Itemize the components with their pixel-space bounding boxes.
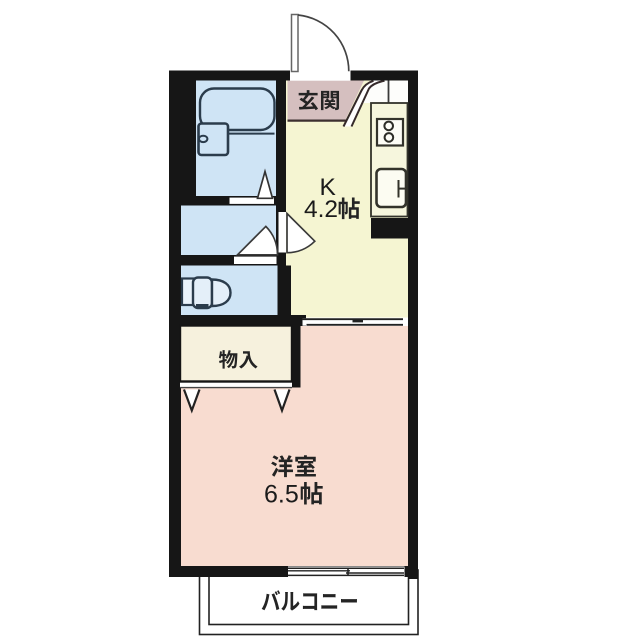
svg-text:6.5: 6.5 (264, 480, 299, 508)
svg-text:4.2: 4.2 (304, 196, 338, 223)
